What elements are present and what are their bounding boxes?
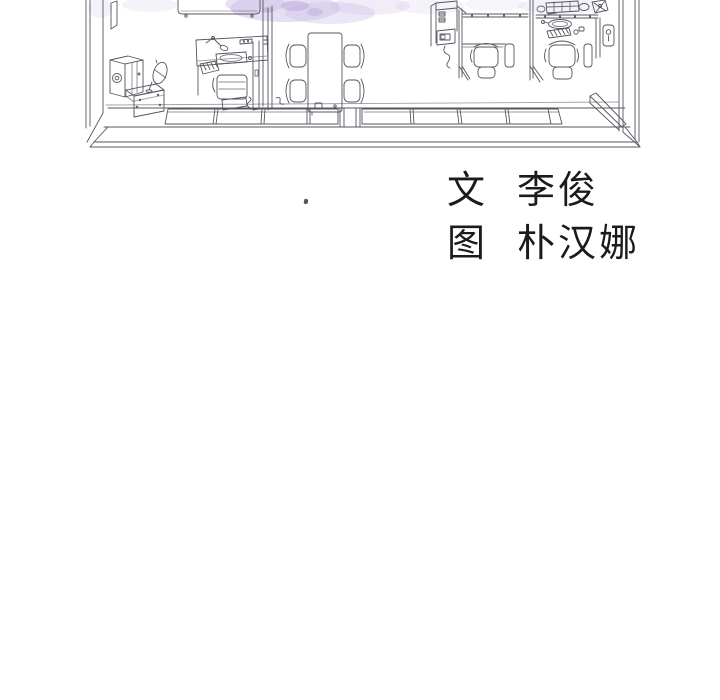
meeting-area: [286, 33, 364, 115]
ink-speck: [304, 199, 309, 205]
office-interior-illustration: [0, 0, 720, 170]
meeting-chair: [344, 44, 364, 68]
wall-outlet-panel: [603, 25, 614, 46]
cubicle-chair-1: [471, 44, 499, 79]
right-ledge: [590, 93, 626, 130]
credit-name-artist: 朴汉娜: [517, 217, 640, 270]
right-zone: [431, 0, 614, 82]
credit-role-writer: 文: [447, 164, 489, 217]
credit-line-artist: 图 朴汉娜: [447, 217, 640, 270]
desk-fan: [549, 20, 572, 29]
cubicle-partition: [459, 9, 470, 80]
room-structure: [86, 0, 640, 147]
meeting-chair: [286, 79, 306, 103]
credits: 文 李俊 图 朴汉娜: [447, 164, 640, 270]
watercolor-wash: [88, 0, 602, 24]
desk-return-panel: [584, 18, 600, 67]
meeting-chair: [344, 79, 364, 103]
cubicle-chair-2: [545, 41, 579, 79]
keyboard-hatched: [547, 28, 571, 38]
meeting-table: [308, 33, 342, 112]
meeting-chair: [286, 44, 306, 68]
floor-tiles: [104, 108, 630, 127]
credit-line-writer: 文 李俊: [447, 164, 640, 217]
cubicle-desk-1: [463, 14, 528, 67]
dark-oval-object: [146, 60, 170, 92]
credit-name-writer: 李俊: [517, 164, 599, 217]
floor-platform-edge: [90, 127, 640, 147]
keyboard-hatched: [200, 61, 219, 74]
wall-window-sliver: [111, 1, 117, 29]
credit-role-artist: 图: [447, 217, 489, 270]
low-cabinet: [126, 84, 164, 117]
